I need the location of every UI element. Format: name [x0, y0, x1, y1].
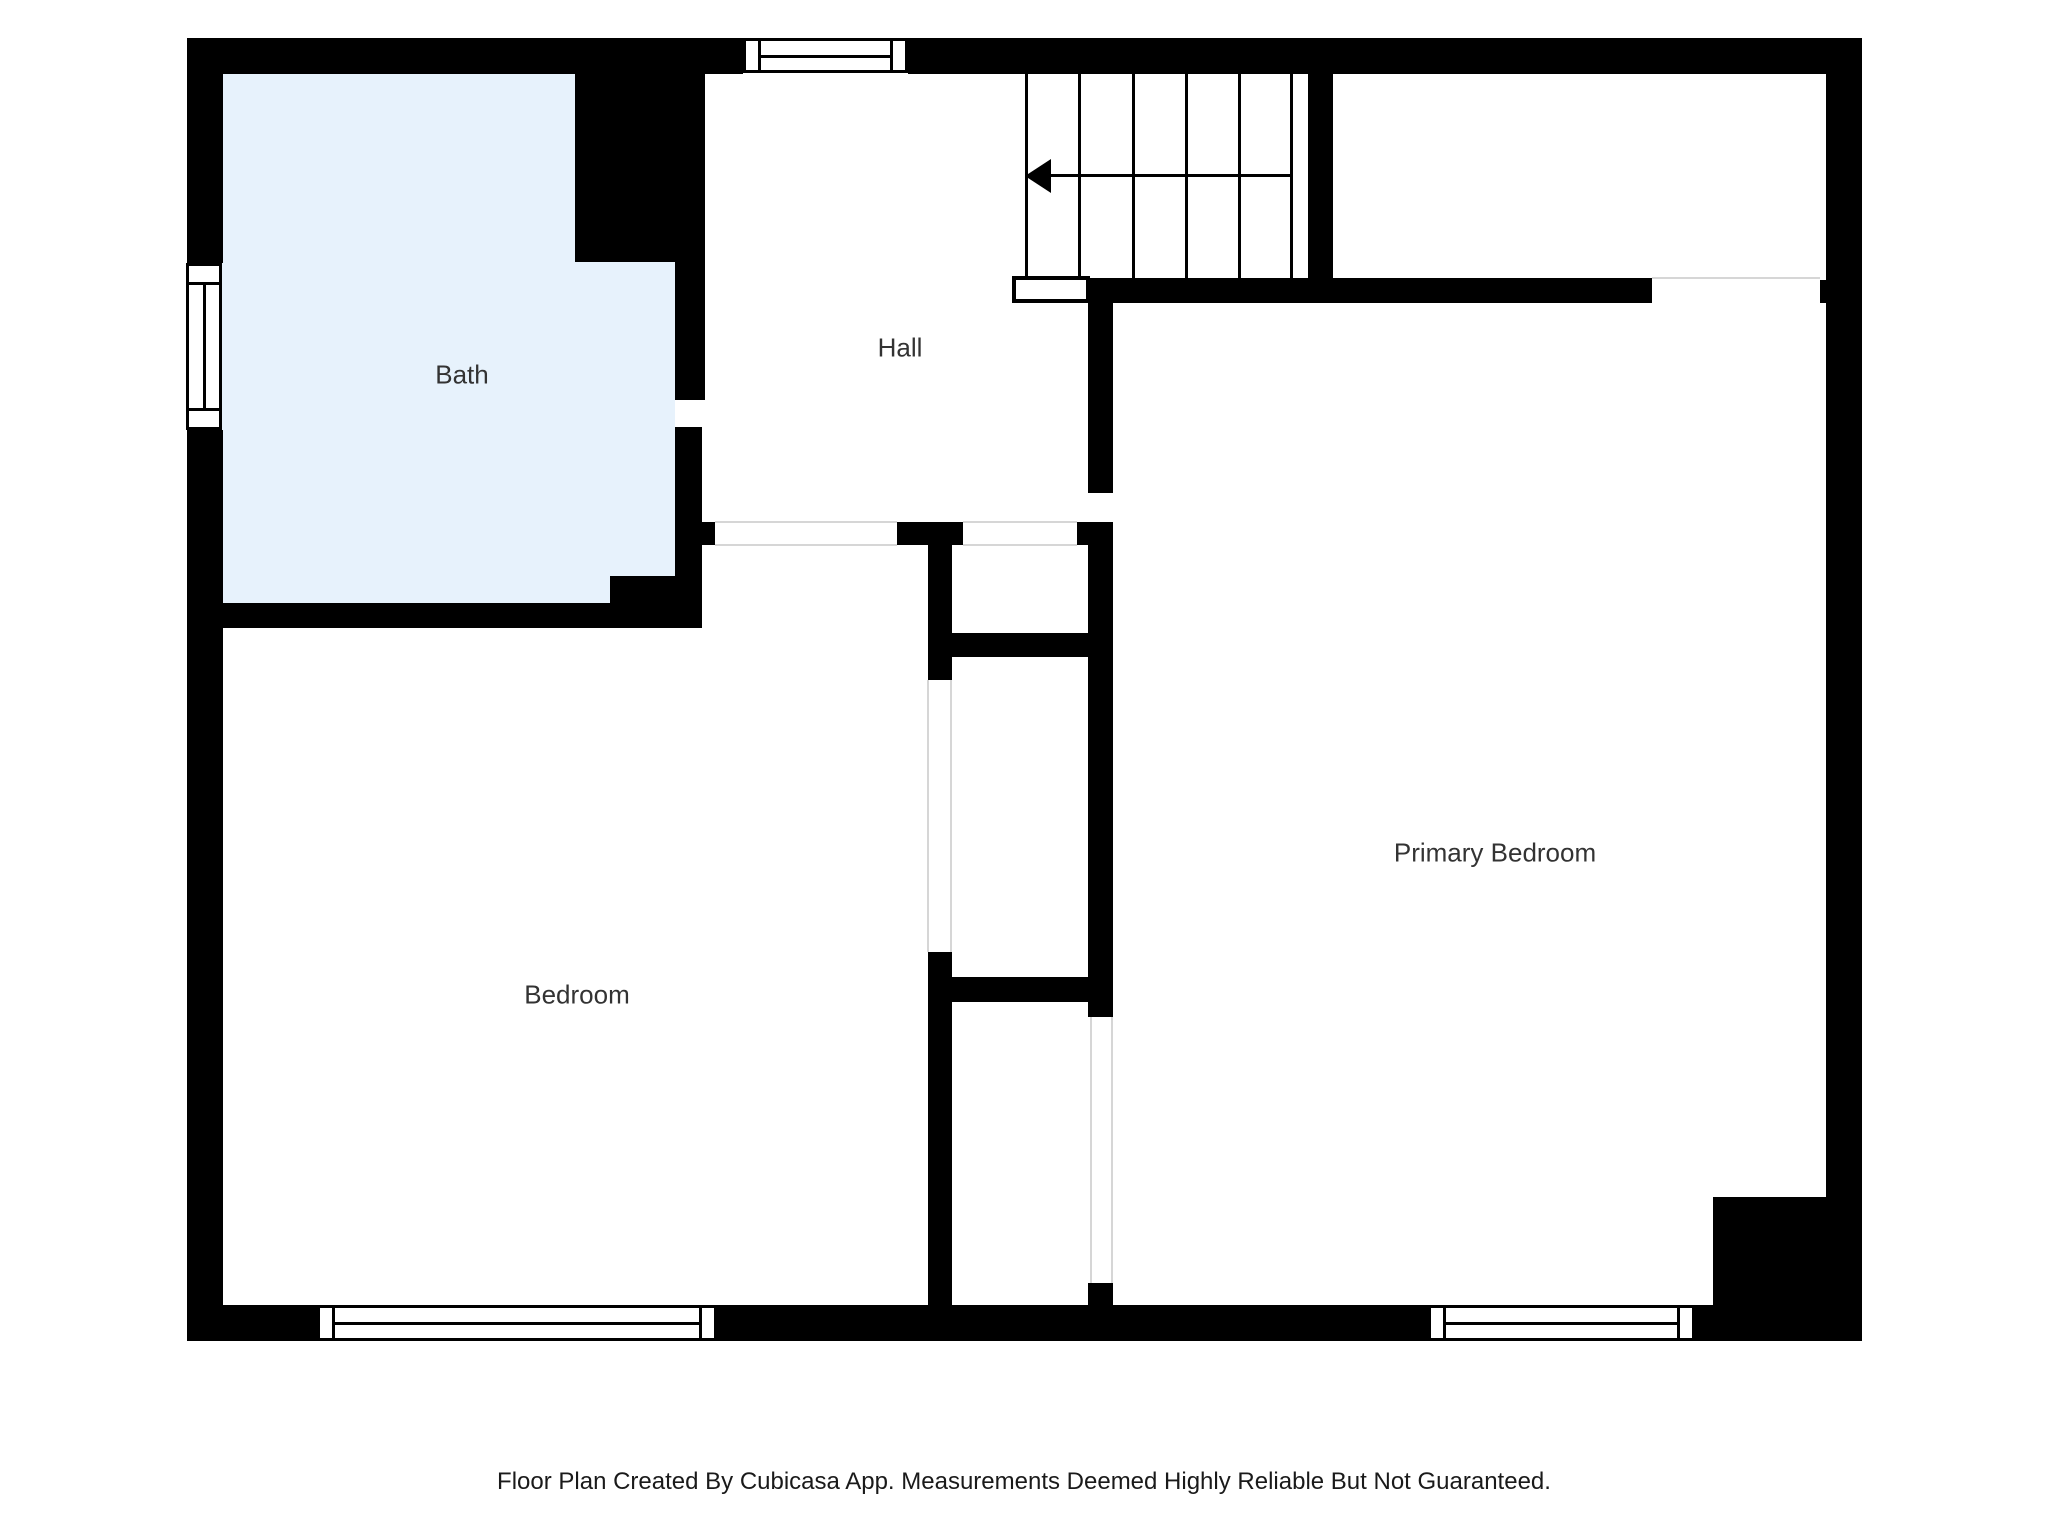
room-label-bedroom: Bedroom [524, 980, 630, 1011]
closet-right-wall [1088, 545, 1113, 1017]
bedroom-closet-opening-line-right [950, 680, 952, 952]
window-jamb-line [1677, 1308, 1680, 1338]
primary-bedroom-notch [1713, 1197, 1827, 1305]
bath-right-wall-upper [675, 262, 705, 400]
stairs-door-leaf [1012, 276, 1090, 303]
bath-corner-block [575, 74, 705, 262]
stairs-right-wall [1308, 38, 1333, 278]
wall-left-lower-segment [187, 430, 223, 1341]
caption-text: Floor Plan Created By Cubicasa App. Meas… [0, 1468, 2048, 1496]
right-wall-nub [1820, 280, 1833, 303]
bath-bottom-step [610, 576, 675, 603]
wall-top-right-segment [908, 38, 1862, 74]
hall-bedroom-opening-line-top [715, 521, 897, 523]
primary-closet-opening-line-right [1111, 1017, 1113, 1283]
hall-bedroom-opening-line-bottom [715, 544, 897, 546]
bath-window [186, 263, 222, 430]
room-label-hall: Hall [878, 333, 923, 364]
hall-closet-opening-line-top [963, 521, 1077, 523]
floor-plan: Bath Hall Bedroom Primary Bedroom Floor … [0, 0, 2048, 1536]
window-pane-line [203, 285, 206, 408]
bedroom-closet-opening-line-left [927, 680, 929, 952]
room-label-bath: Bath [435, 360, 489, 391]
wall-bottom-mid-segment [717, 1305, 1428, 1341]
primary-closet-opening-line-left [1090, 1017, 1092, 1283]
closet-right-wall-nub [1088, 1283, 1113, 1310]
hall-window [743, 38, 908, 73]
closet-left-wall-lower [928, 952, 952, 1310]
stairs-arrow-left-icon [1025, 159, 1051, 193]
window-pane-line [1446, 1322, 1677, 1325]
stairs-direction-line [1047, 174, 1293, 177]
window-jamb-line [189, 408, 219, 411]
hall-right-wall [1088, 302, 1113, 493]
room-label-primary: Primary Bedroom [1394, 838, 1596, 869]
hall-bottom-wall-corner [1077, 522, 1113, 545]
window-jamb-line [699, 1308, 702, 1338]
closet-divider-upper [952, 633, 1093, 657]
hall-doorway-nub-left [697, 522, 715, 545]
window-pane-line [761, 55, 890, 58]
closet-left-wall-upper [928, 545, 952, 680]
hall-closet-opening-line-bottom [963, 544, 1077, 546]
wall-left-upper-segment [187, 38, 223, 263]
wall-top-left-segment [187, 38, 743, 74]
primary-bedroom-window [1428, 1305, 1695, 1341]
window-jamb-line [890, 41, 893, 70]
wall-right [1826, 38, 1862, 1341]
stairs-bottom-wall [1090, 278, 1652, 303]
bedroom-window [317, 1305, 717, 1341]
window-pane-line [335, 1322, 699, 1325]
bath-bottom-wall [222, 603, 702, 628]
hall-bottom-wall-mid [897, 522, 963, 545]
staircase [1025, 74, 1293, 278]
landing-boundary-line [1652, 277, 1820, 279]
